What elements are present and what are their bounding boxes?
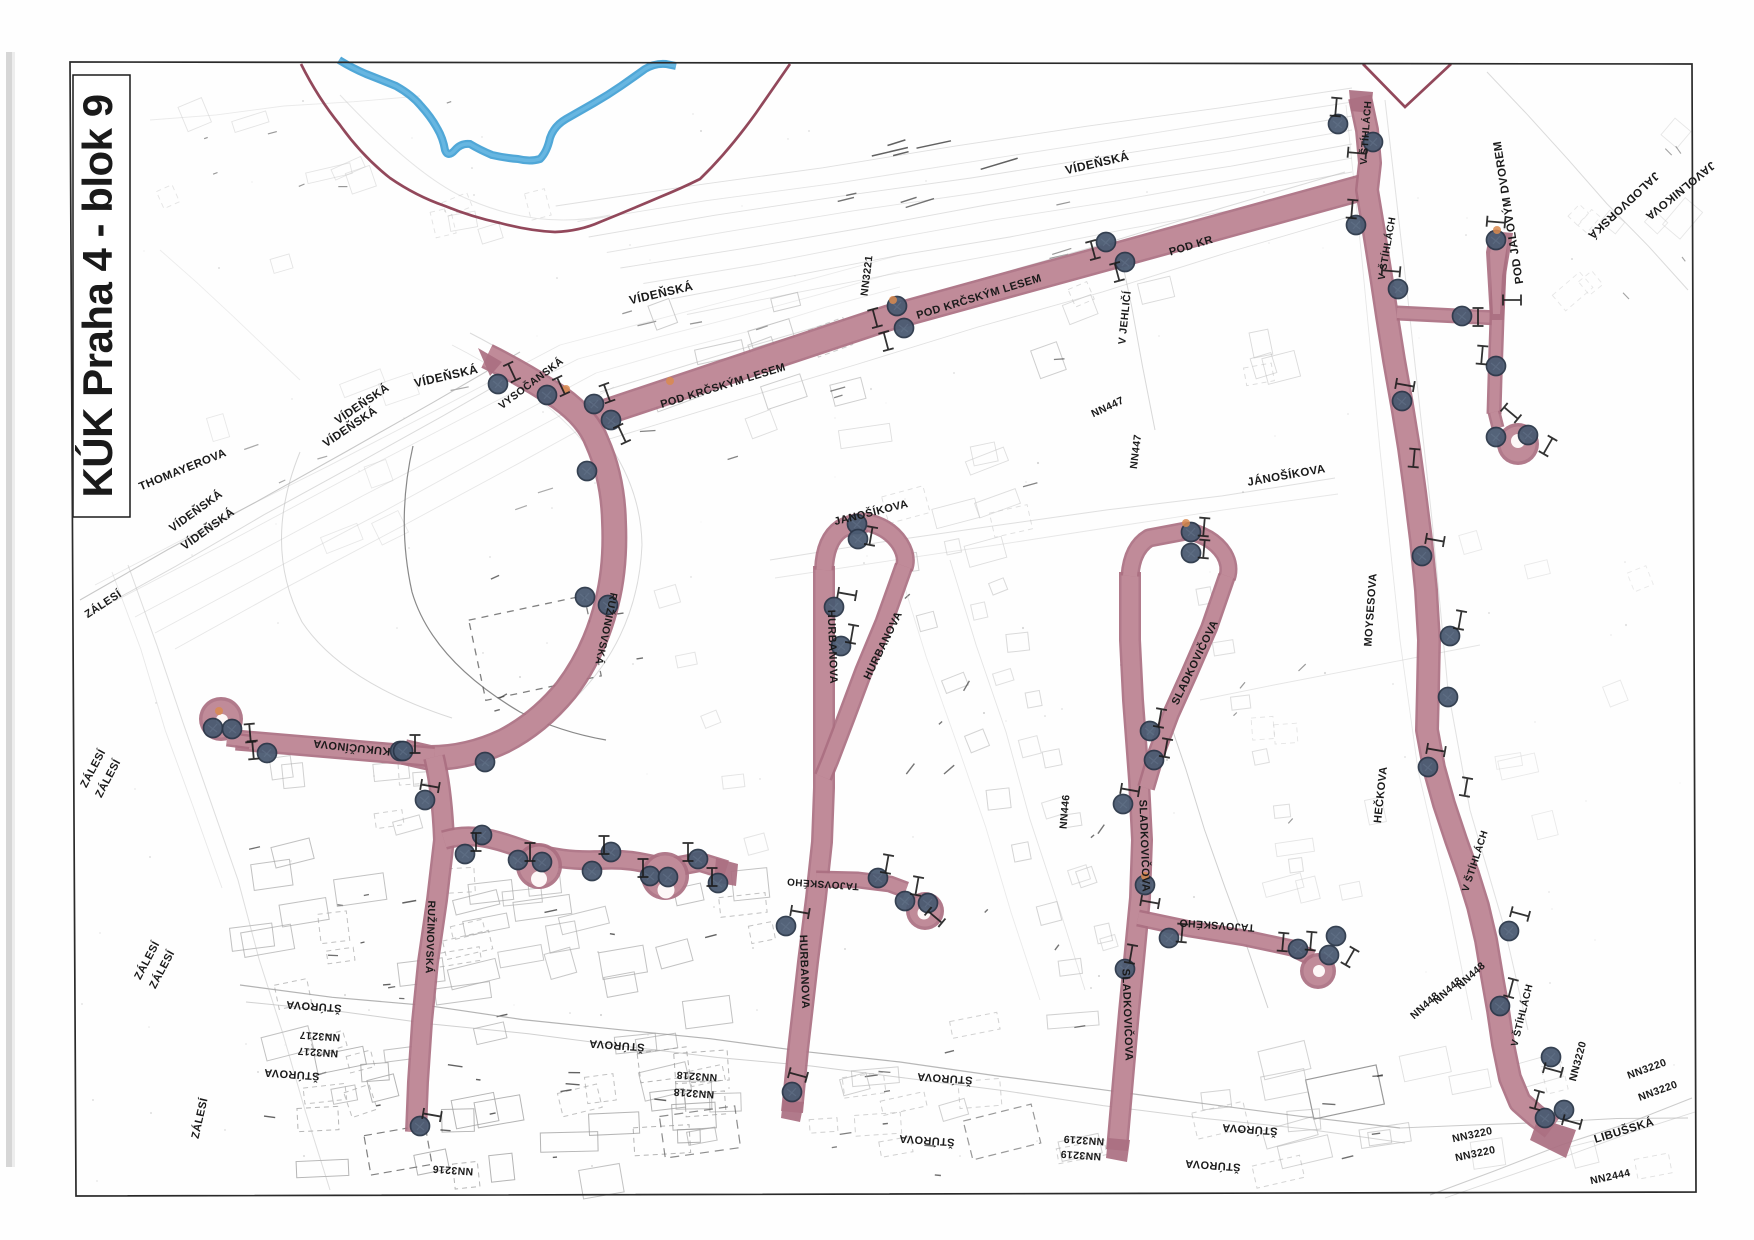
svg-text:KÚK Praha 4 - blok 9: KÚK Praha 4 - blok 9 [73,94,121,497]
svg-text:RUŽINOVSKÁ: RUŽINOVSKÁ [423,900,439,974]
